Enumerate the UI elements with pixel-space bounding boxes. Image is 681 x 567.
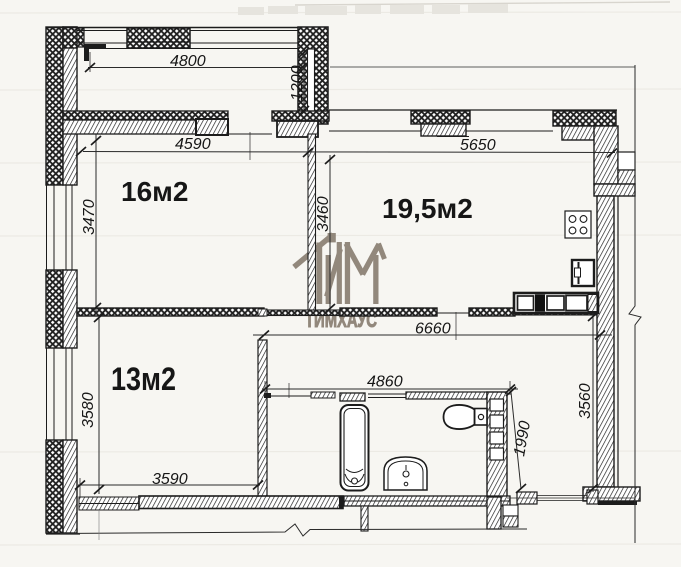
svg-text:1200: 1200 [289,65,306,101]
svg-text:6660: 6660 [415,321,451,338]
svg-text:3560: 3560 [577,383,594,419]
svg-text:4590: 4590 [175,136,211,153]
svg-text:16м2: 16м2 [121,176,188,207]
svg-text:5650: 5650 [460,137,496,154]
svg-text:4860: 4860 [367,374,403,391]
svg-text:19,5м2: 19,5м2 [382,193,473,224]
svg-text:3590: 3590 [152,471,188,488]
svg-text:3580: 3580 [80,392,97,428]
svg-text:3470: 3470 [81,199,98,235]
svg-text:4800: 4800 [170,53,206,70]
svg-text:3460: 3460 [315,196,332,232]
svg-text:13м2: 13м2 [111,361,176,397]
